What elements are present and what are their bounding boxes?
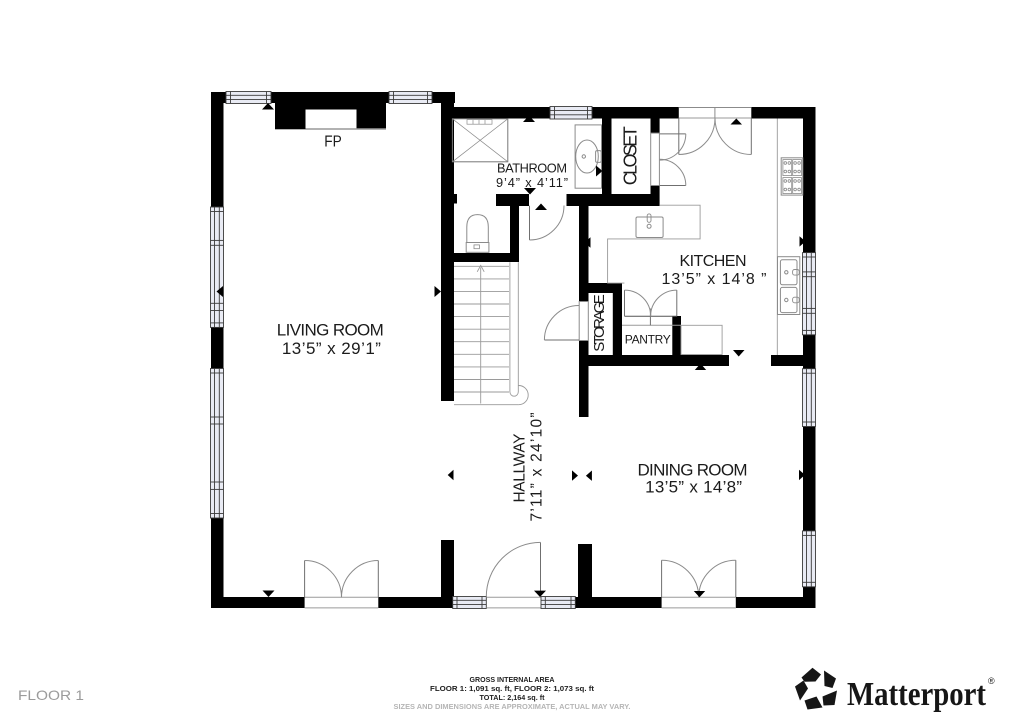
- svg-text:CLOSET: CLOSET: [621, 126, 641, 185]
- svg-text:FLOOR 1: FLOOR 1: [18, 687, 84, 703]
- svg-text:7’11” x 24’10”: 7’11” x 24’10”: [529, 413, 546, 522]
- svg-text:FLOOR 1: 1,091 sq. ft, FLOOR 2: FLOOR 1: 1,091 sq. ft, FLOOR 2: 1,073 sq…: [430, 684, 594, 693]
- svg-text:9’4” x 4’11”: 9’4” x 4’11”: [496, 175, 568, 190]
- svg-text:SIZES AND DIMENSIONS ARE APPRO: SIZES AND DIMENSIONS ARE APPROXIMATE, AC…: [394, 702, 631, 711]
- svg-text:KITCHEN: KITCHEN: [680, 253, 747, 270]
- svg-text:GROSS INTERNAL AREA: GROSS INTERNAL AREA: [470, 675, 555, 684]
- svg-text:BATHROOM: BATHROOM: [497, 161, 567, 176]
- svg-text:FP: FP: [324, 133, 342, 150]
- svg-text:13’5” x 14’8”: 13’5” x 14’8”: [645, 477, 742, 496]
- svg-text:LIVING ROOM: LIVING ROOM: [277, 321, 384, 340]
- svg-text:®: ®: [988, 676, 995, 686]
- svg-text:TOTAL: 2,164 sq. ft: TOTAL: 2,164 sq. ft: [480, 693, 545, 702]
- svg-text:HALLWAY: HALLWAY: [512, 434, 529, 503]
- svg-text:PANTRY: PANTRY: [625, 333, 671, 347]
- svg-text:Matterport: Matterport: [847, 676, 987, 713]
- svg-text:STORAGE: STORAGE: [591, 294, 608, 352]
- svg-text:13’5” x 14’8 ”: 13’5” x 14’8 ”: [662, 271, 767, 288]
- svg-text:13’5” x 29’1”: 13’5” x 29’1”: [282, 339, 381, 358]
